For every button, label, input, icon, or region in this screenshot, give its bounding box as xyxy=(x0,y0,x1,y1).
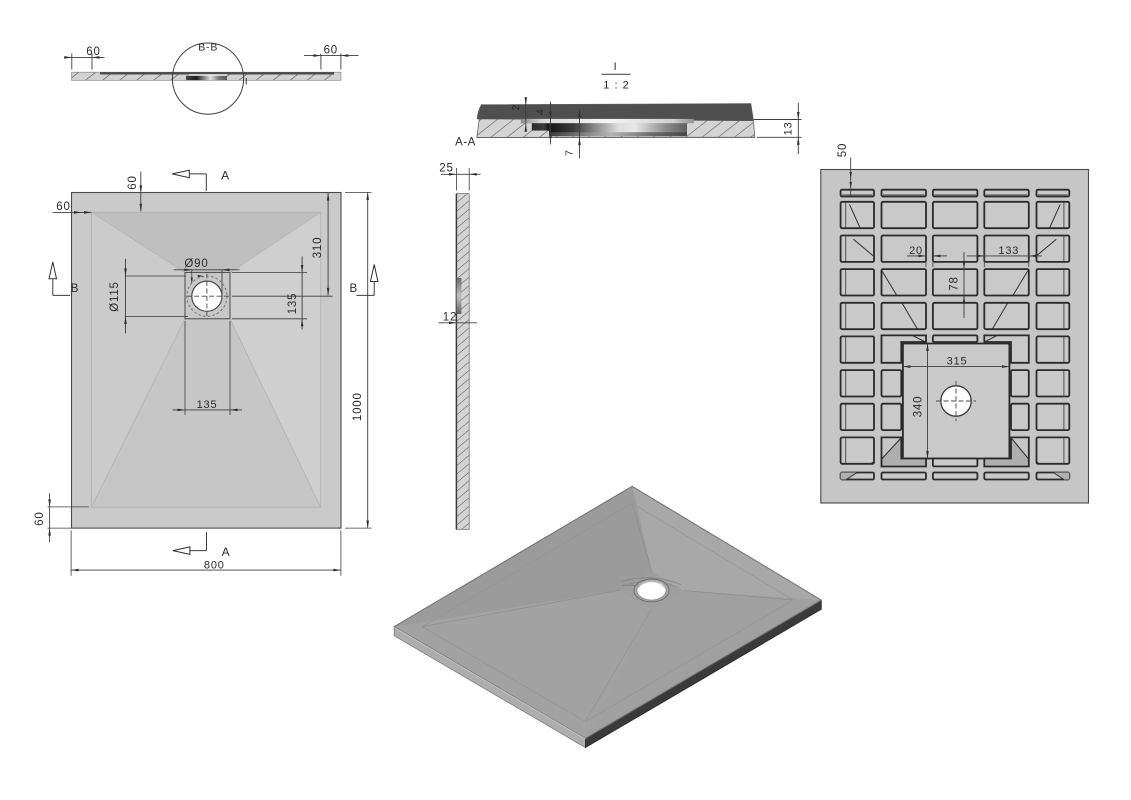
svg-text:12: 12 xyxy=(443,311,457,323)
svg-text:340: 340 xyxy=(912,396,924,418)
svg-text:310: 310 xyxy=(312,237,324,259)
svg-text:135: 135 xyxy=(287,293,299,315)
svg-text:Ø90: Ø90 xyxy=(184,258,208,270)
svg-text:78: 78 xyxy=(948,276,960,290)
svg-text:4: 4 xyxy=(535,108,547,115)
svg-text:25: 25 xyxy=(439,162,453,174)
svg-text:20: 20 xyxy=(909,245,923,257)
svg-text:60: 60 xyxy=(127,175,139,189)
svg-text:60: 60 xyxy=(86,46,100,58)
svg-text:60: 60 xyxy=(56,201,70,213)
svg-text:60: 60 xyxy=(34,511,46,525)
svg-text:2: 2 xyxy=(510,104,522,111)
svg-text:A: A xyxy=(221,169,230,183)
svg-text:133: 133 xyxy=(998,245,1019,257)
svg-text:60: 60 xyxy=(324,44,338,56)
svg-text:315: 315 xyxy=(947,355,968,367)
svg-text:50: 50 xyxy=(837,143,849,157)
svg-text:B: B xyxy=(71,283,79,295)
svg-text:B: B xyxy=(350,283,358,295)
svg-text:Ø115: Ø115 xyxy=(109,281,121,311)
svg-text:800: 800 xyxy=(204,559,225,571)
svg-text:1 : 2: 1 : 2 xyxy=(603,80,629,92)
svg-text:1000: 1000 xyxy=(352,392,364,421)
svg-text:B-B: B-B xyxy=(198,41,218,53)
svg-text:7: 7 xyxy=(564,149,576,156)
svg-text:I: I xyxy=(245,77,248,88)
svg-text:A: A xyxy=(222,545,231,559)
svg-text:A-A: A-A xyxy=(455,137,476,149)
svg-text:135: 135 xyxy=(197,399,218,411)
svg-text:I: I xyxy=(614,61,618,73)
svg-text:13: 13 xyxy=(783,121,795,135)
